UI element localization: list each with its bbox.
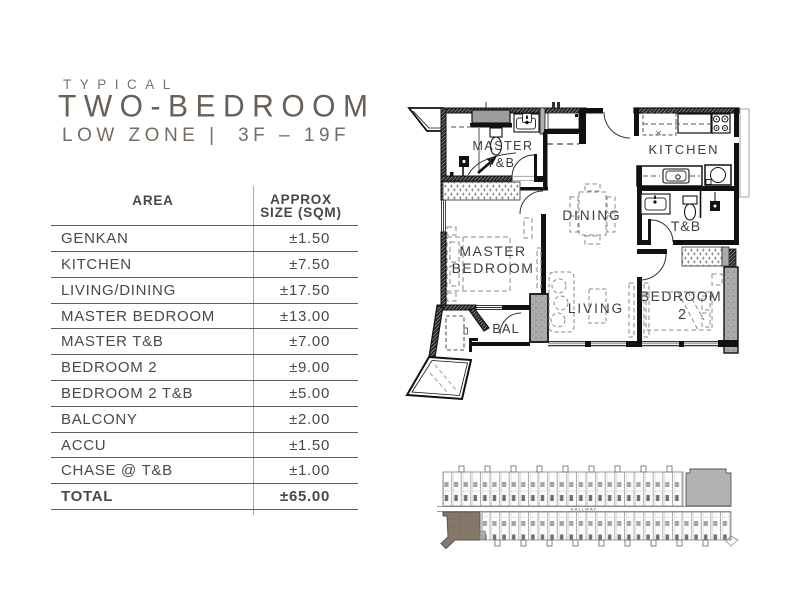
svg-text:KITCHEN: KITCHEN (648, 142, 719, 157)
svg-text:HALLWAY: HALLWAY (571, 507, 598, 512)
svg-text:MASTER: MASTER (472, 139, 533, 153)
svg-text:MASTER: MASTER (459, 243, 526, 259)
svg-text:BEDROOM: BEDROOM (640, 288, 722, 304)
svg-text:2: 2 (678, 307, 686, 323)
svg-text:BEDROOM: BEDROOM (452, 260, 535, 276)
svg-text:T&B: T&B (671, 218, 701, 234)
svg-text:BAL: BAL (492, 321, 520, 336)
svg-text:LIVING: LIVING (568, 301, 624, 316)
svg-text:DINING: DINING (562, 208, 621, 223)
svg-text:T&B: T&B (487, 156, 516, 170)
